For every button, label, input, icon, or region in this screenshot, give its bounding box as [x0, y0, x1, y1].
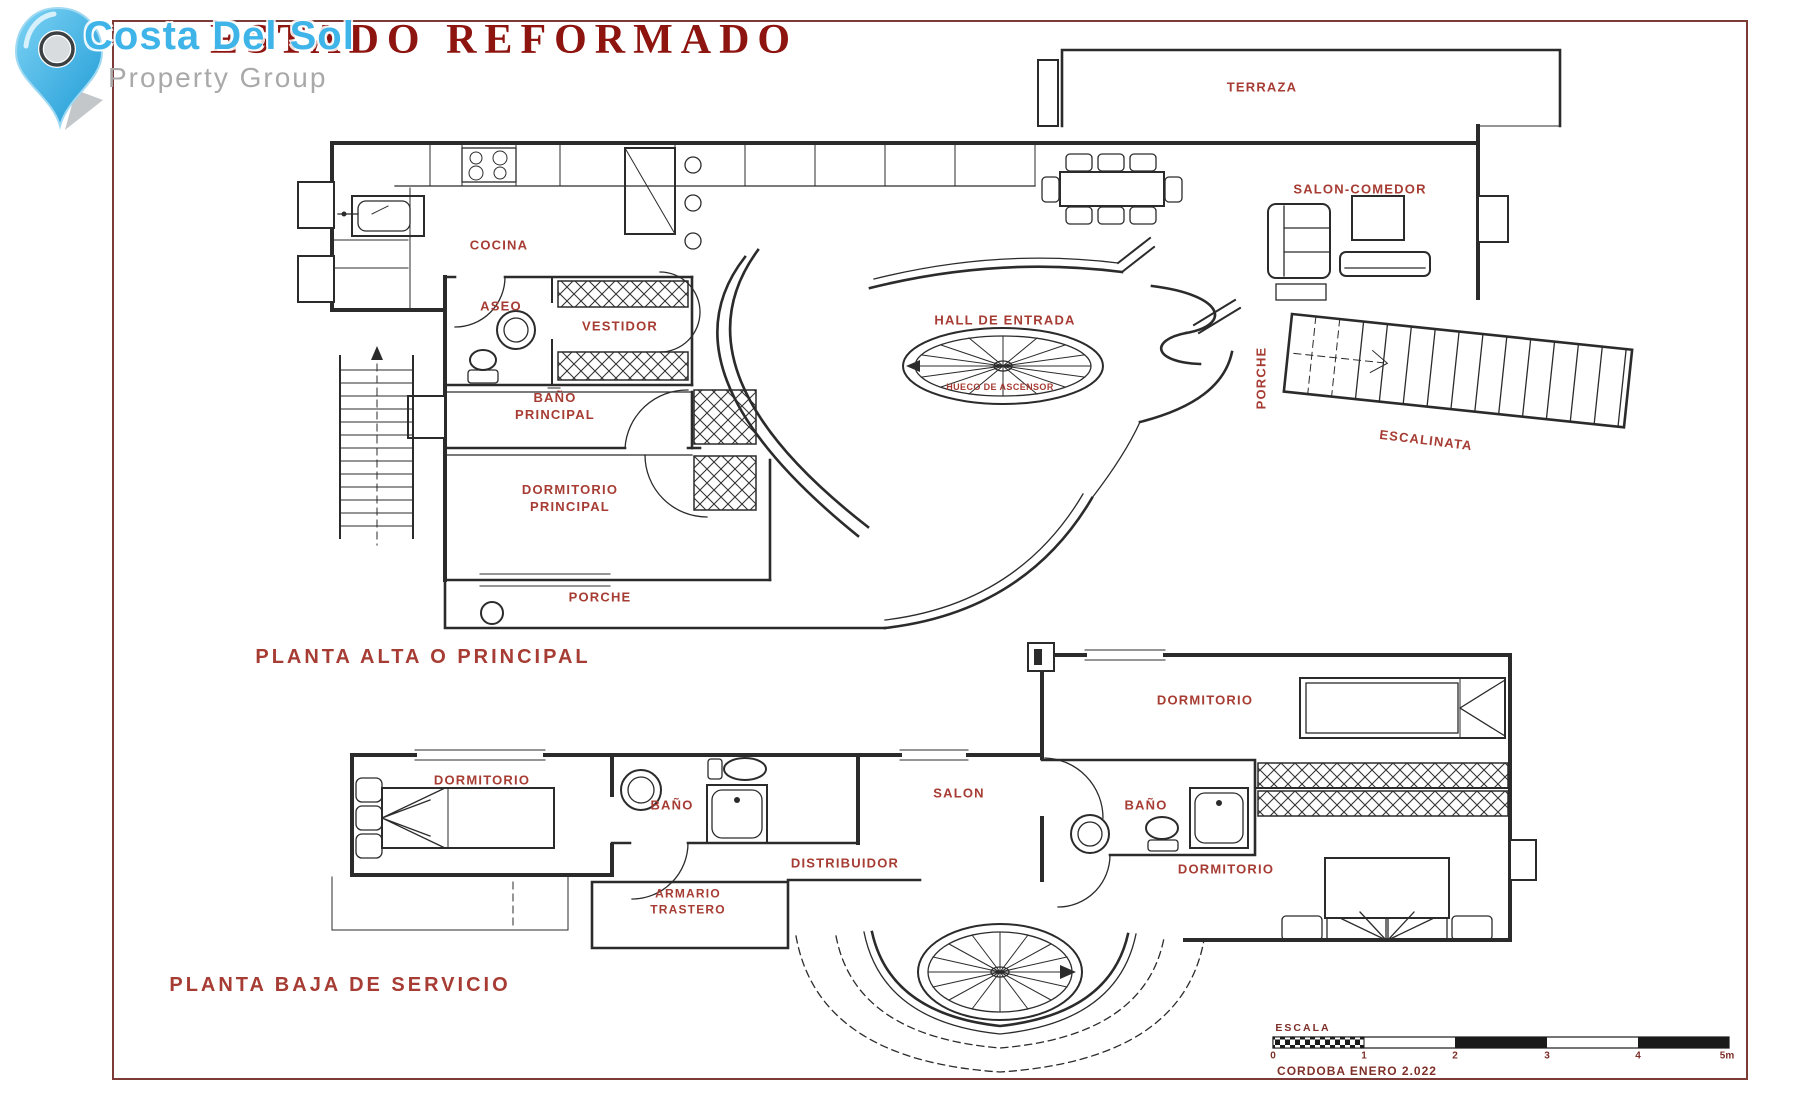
basin-icon	[497, 311, 535, 349]
floorplan-page: ESTADO REFORMADO Costa Del Sol Property …	[0, 0, 1800, 1100]
sofa-icon	[1268, 204, 1430, 300]
terraza-walls	[1038, 50, 1560, 126]
room-label-salon-comedor: SALON-COMEDOR	[1293, 182, 1426, 199]
scale-bar	[1273, 1037, 1729, 1048]
room-label-dormitorio-inf: DORMITORIO	[1178, 862, 1274, 879]
room-label-vestidor: VESTIDOR	[582, 319, 658, 336]
lower-plan-title: PLANTA BAJA DE SERVICIO	[169, 972, 510, 998]
escalinata-stairs	[1284, 314, 1632, 427]
lower-floor-plan	[332, 643, 1536, 1072]
basin-icon	[1071, 815, 1109, 853]
scale-tick-3: 3	[1544, 1050, 1550, 1063]
room-label-dormitorio-sup: DORMITORIO	[1157, 693, 1253, 710]
lower-terrace-left	[332, 877, 568, 930]
room-label-aseo: ASEO	[480, 299, 522, 316]
room-label-hueco-ascensor: HUECO DE ASCENSOR	[946, 382, 1053, 394]
upper-floor-plan	[298, 50, 1632, 628]
scale-tick-0: 0	[1270, 1050, 1276, 1063]
logo-tagline: Property Group	[108, 62, 327, 94]
room-label-bano-izq: BAÑO	[650, 798, 693, 815]
toilet-icon	[1146, 817, 1178, 851]
bathtub-icon	[707, 785, 767, 843]
room-label-dormitorio-principal: DORMITORIO PRINCIPAL	[522, 482, 618, 516]
room-label-distribuidor: DISTRIBUIDOR	[791, 856, 899, 873]
room-label-porche-lateral: PORCHE	[1254, 347, 1271, 410]
bano-left-fixtures	[621, 758, 767, 899]
room-label-porche: PORCHE	[569, 590, 632, 607]
room-label-hall: HALL DE ENTRADA	[934, 313, 1075, 330]
room-label-terraza: TERRAZA	[1227, 80, 1298, 97]
scale-label: ESCALA	[1275, 1022, 1330, 1036]
bathtub-icon	[1190, 788, 1248, 848]
salon-comedor-furniture	[1042, 154, 1430, 300]
exterior-stair-left	[340, 346, 413, 545]
room-label-bano-principal: BAÑO PRINCIPAL	[515, 390, 595, 424]
room-label-armario: ARMARIO TRASTERO	[650, 886, 726, 917]
entry-porch-walls	[1092, 286, 1240, 498]
door-arc	[1045, 758, 1103, 818]
scale-tick-4: 4	[1635, 1050, 1641, 1063]
coffee-table-icon	[1352, 196, 1404, 240]
bed-bottom-right-icon	[1282, 858, 1492, 940]
room-label-salon: SALON	[933, 786, 985, 803]
fridge-icon	[625, 148, 675, 234]
scale-tick-1: 1	[1361, 1050, 1367, 1063]
upper-plan-title: PLANTA ALTA O PRINCIPAL	[255, 644, 590, 670]
wardrobe	[1258, 763, 1508, 788]
spiral-staircase-icon	[918, 924, 1082, 1020]
toilet-icon	[468, 350, 498, 383]
logo: Costa Del Sol Property Group	[0, 0, 420, 140]
room-label-cocina: COCINA	[470, 238, 528, 255]
wardrobe	[1258, 791, 1508, 816]
room-label-dormitorio-izq: DORMITORIO	[434, 773, 530, 790]
column-icon	[481, 602, 503, 624]
room-label-bano-der: BAÑO	[1124, 798, 1167, 815]
floorplan-drawing	[0, 0, 1800, 1100]
kitchen-sink-icon	[338, 196, 424, 236]
scale-tick-2: 2	[1452, 1050, 1458, 1063]
toilet-icon	[708, 758, 766, 780]
scale-tick-5: 5m	[1720, 1050, 1734, 1063]
hob-icon	[462, 148, 516, 182]
scale-note: CORDOBA ENERO 2.022	[1277, 1064, 1437, 1080]
logo-name: Costa Del Sol	[84, 14, 355, 59]
dining-table-icon	[1042, 154, 1182, 224]
bed-top-right-icon	[1300, 678, 1505, 738]
bed-left-icon	[356, 778, 554, 858]
